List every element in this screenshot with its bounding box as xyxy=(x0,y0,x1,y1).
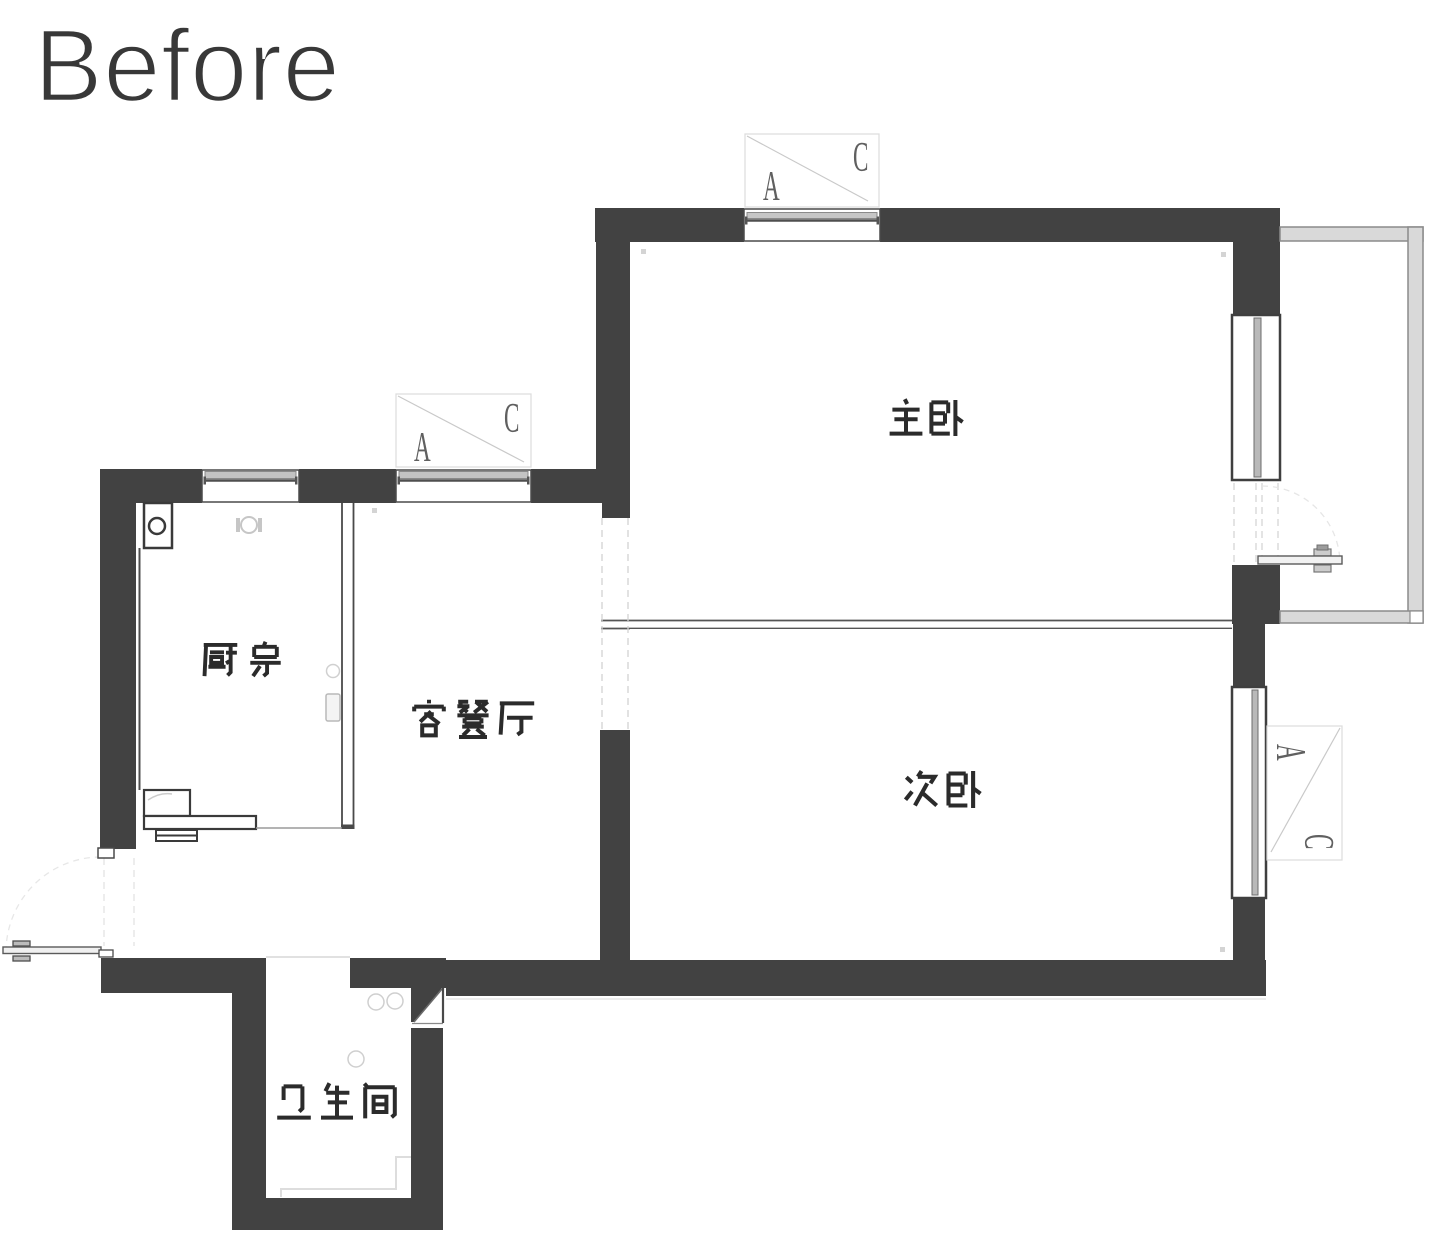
svg-text:C: C xyxy=(504,396,519,442)
svg-text:A: A xyxy=(763,164,780,210)
svg-text:C: C xyxy=(1295,834,1341,849)
svg-text:A: A xyxy=(414,425,431,471)
svg-text:C: C xyxy=(853,135,868,181)
svg-text:A: A xyxy=(1267,744,1313,761)
